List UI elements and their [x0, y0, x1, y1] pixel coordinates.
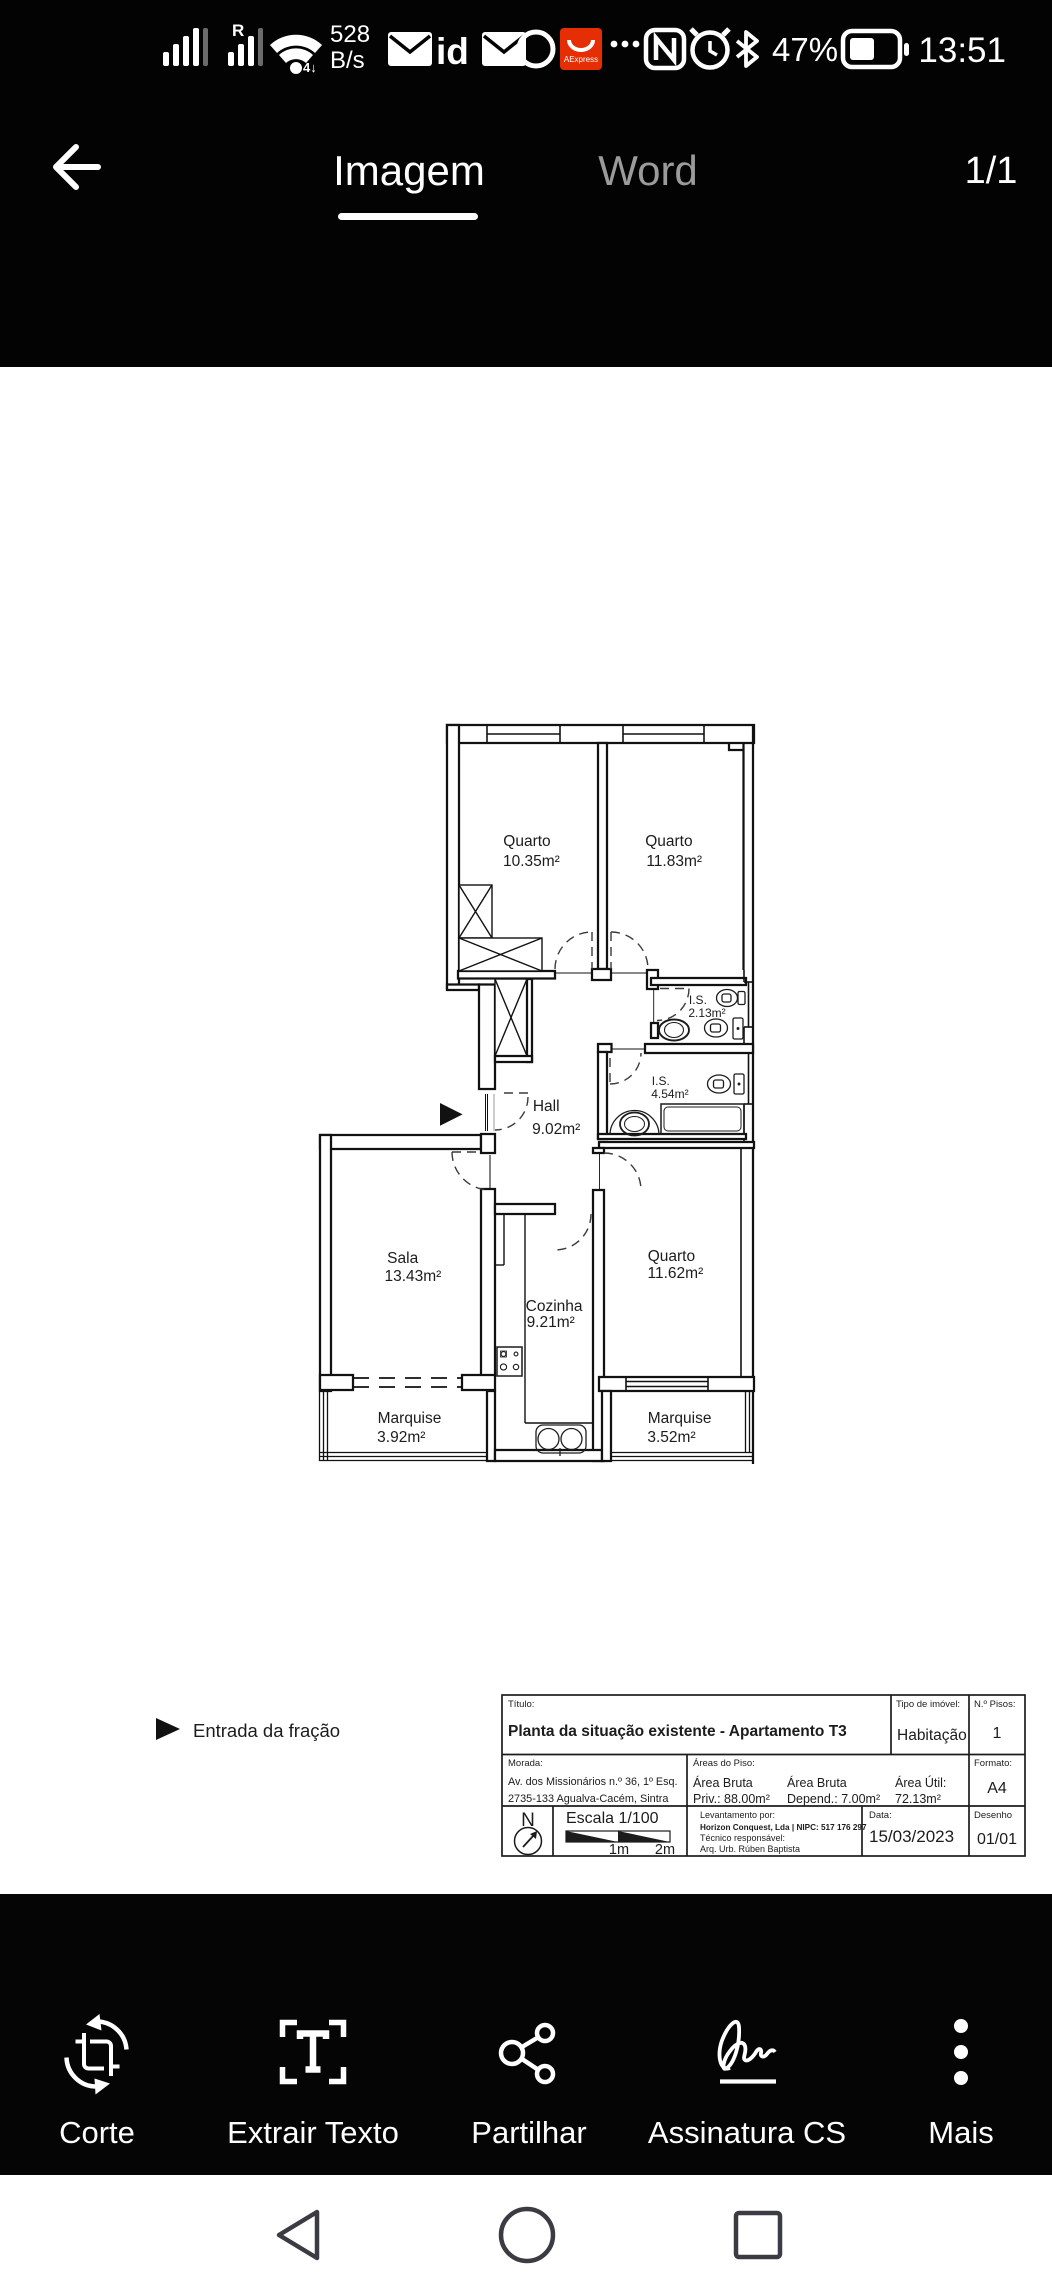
svg-text:Arq. Urb. Rúben Baptista: Arq. Urb. Rúben Baptista: [700, 1844, 800, 1854]
svg-text:72.13m²: 72.13m²: [895, 1792, 941, 1806]
svg-text:Marquise: Marquise: [648, 1410, 712, 1427]
svg-text:I.S.: I.S.: [652, 1074, 670, 1088]
svg-text:3.52m²: 3.52m²: [647, 1429, 695, 1446]
svg-text:9.21m²: 9.21m²: [527, 1314, 575, 1331]
svg-text:Planta da situação existente -: Planta da situação existente - Apartamen…: [508, 1723, 847, 1740]
svg-text:47%: 47%: [772, 31, 838, 68]
svg-text:11.83m²: 11.83m²: [646, 853, 702, 870]
svg-text:Av. dos Missionários n.º 36, 1: Av. dos Missionários n.º 36, 1º Esq.: [508, 1776, 678, 1788]
svg-text:AExpress: AExpress: [564, 55, 598, 64]
svg-text:10.35m²: 10.35m²: [503, 853, 560, 870]
svg-text:I.S.: I.S.: [689, 993, 707, 1007]
svg-text:Data:: Data:: [869, 1810, 892, 1821]
svg-text:Levantamento por:: Levantamento por:: [700, 1810, 775, 1820]
svg-text:3.92m²: 3.92m²: [377, 1429, 425, 1446]
svg-text:Escala 1/100: Escala 1/100: [566, 1810, 659, 1827]
svg-text:Mais: Mais: [928, 2115, 993, 2150]
svg-text:id: id: [436, 31, 469, 72]
svg-text:N.º Pisos:: N.º Pisos:: [974, 1699, 1015, 1710]
svg-text:B/s: B/s: [330, 47, 365, 74]
svg-text:4.54m²: 4.54m²: [651, 1087, 688, 1101]
svg-text:Formato:: Formato:: [974, 1758, 1012, 1769]
svg-text:Assinatura CS: Assinatura CS: [648, 2115, 846, 2150]
svg-text:Sala: Sala: [387, 1250, 418, 1267]
svg-text:Título:: Título:: [508, 1699, 534, 1710]
svg-text:Quarto: Quarto: [503, 833, 550, 850]
svg-text:R: R: [232, 21, 244, 40]
svg-text:1m: 1m: [609, 1842, 629, 1858]
svg-text:01/01: 01/01: [977, 1831, 1017, 1848]
svg-text:9.02m²: 9.02m²: [532, 1121, 580, 1138]
svg-text:Área Bruta: Área Bruta: [787, 1775, 847, 1790]
svg-text:Imagem: Imagem: [333, 147, 485, 194]
svg-text:2735-133 Agualva-Cacém, Sintra: 2735-133 Agualva-Cacém, Sintra: [508, 1793, 669, 1805]
svg-text:Priv.: 88.00m²: Priv.: 88.00m²: [693, 1792, 770, 1806]
svg-text:A4: A4: [987, 1780, 1007, 1797]
svg-text:2.13m²: 2.13m²: [688, 1006, 725, 1020]
svg-text:Morada:: Morada:: [508, 1758, 543, 1769]
svg-text:528: 528: [330, 21, 370, 48]
svg-text:11.62m²: 11.62m²: [648, 1265, 704, 1282]
svg-text:Horizon Conquest, Lda | NIPC:: Horizon Conquest, Lda | NIPC: 517 176 29…: [700, 1823, 867, 1832]
svg-text:13:51: 13:51: [918, 31, 1006, 70]
svg-text:13.43m²: 13.43m²: [384, 1268, 441, 1285]
svg-text:Marquise: Marquise: [378, 1410, 442, 1427]
svg-text:Tipo de imóvel:: Tipo de imóvel:: [896, 1699, 960, 1710]
svg-text:Hall: Hall: [533, 1098, 560, 1115]
svg-text:Corte: Corte: [59, 2115, 135, 2150]
svg-text:Área Bruta: Área Bruta: [693, 1775, 753, 1790]
svg-text:Cozinha: Cozinha: [526, 1298, 583, 1315]
svg-text:15/03/2023: 15/03/2023: [869, 1827, 954, 1846]
svg-text:Word: Word: [598, 147, 698, 194]
svg-text:2m: 2m: [655, 1842, 675, 1858]
svg-text:Entrada da fração: Entrada da fração: [193, 1720, 340, 1741]
svg-text:Quarto: Quarto: [645, 833, 692, 850]
svg-text:Quarto: Quarto: [648, 1248, 695, 1265]
svg-text:Depend.: 7.00m²: Depend.: 7.00m²: [787, 1792, 880, 1806]
svg-text:Extrair Texto: Extrair Texto: [227, 2115, 399, 2150]
svg-text:Área Útil:: Área Útil:: [895, 1775, 946, 1790]
svg-text:Desenho: Desenho: [974, 1810, 1012, 1821]
svg-text:Habitação: Habitação: [897, 1727, 967, 1744]
svg-text:1/1: 1/1: [965, 150, 1018, 192]
svg-text:Técnico responsável:: Técnico responsável:: [700, 1833, 785, 1843]
svg-text:4↓: 4↓: [303, 60, 317, 75]
svg-text:Áreas do Piso:: Áreas do Piso:: [693, 1758, 755, 1769]
svg-text:1: 1: [993, 1725, 1002, 1742]
svg-text:Partilhar: Partilhar: [471, 2115, 586, 2150]
